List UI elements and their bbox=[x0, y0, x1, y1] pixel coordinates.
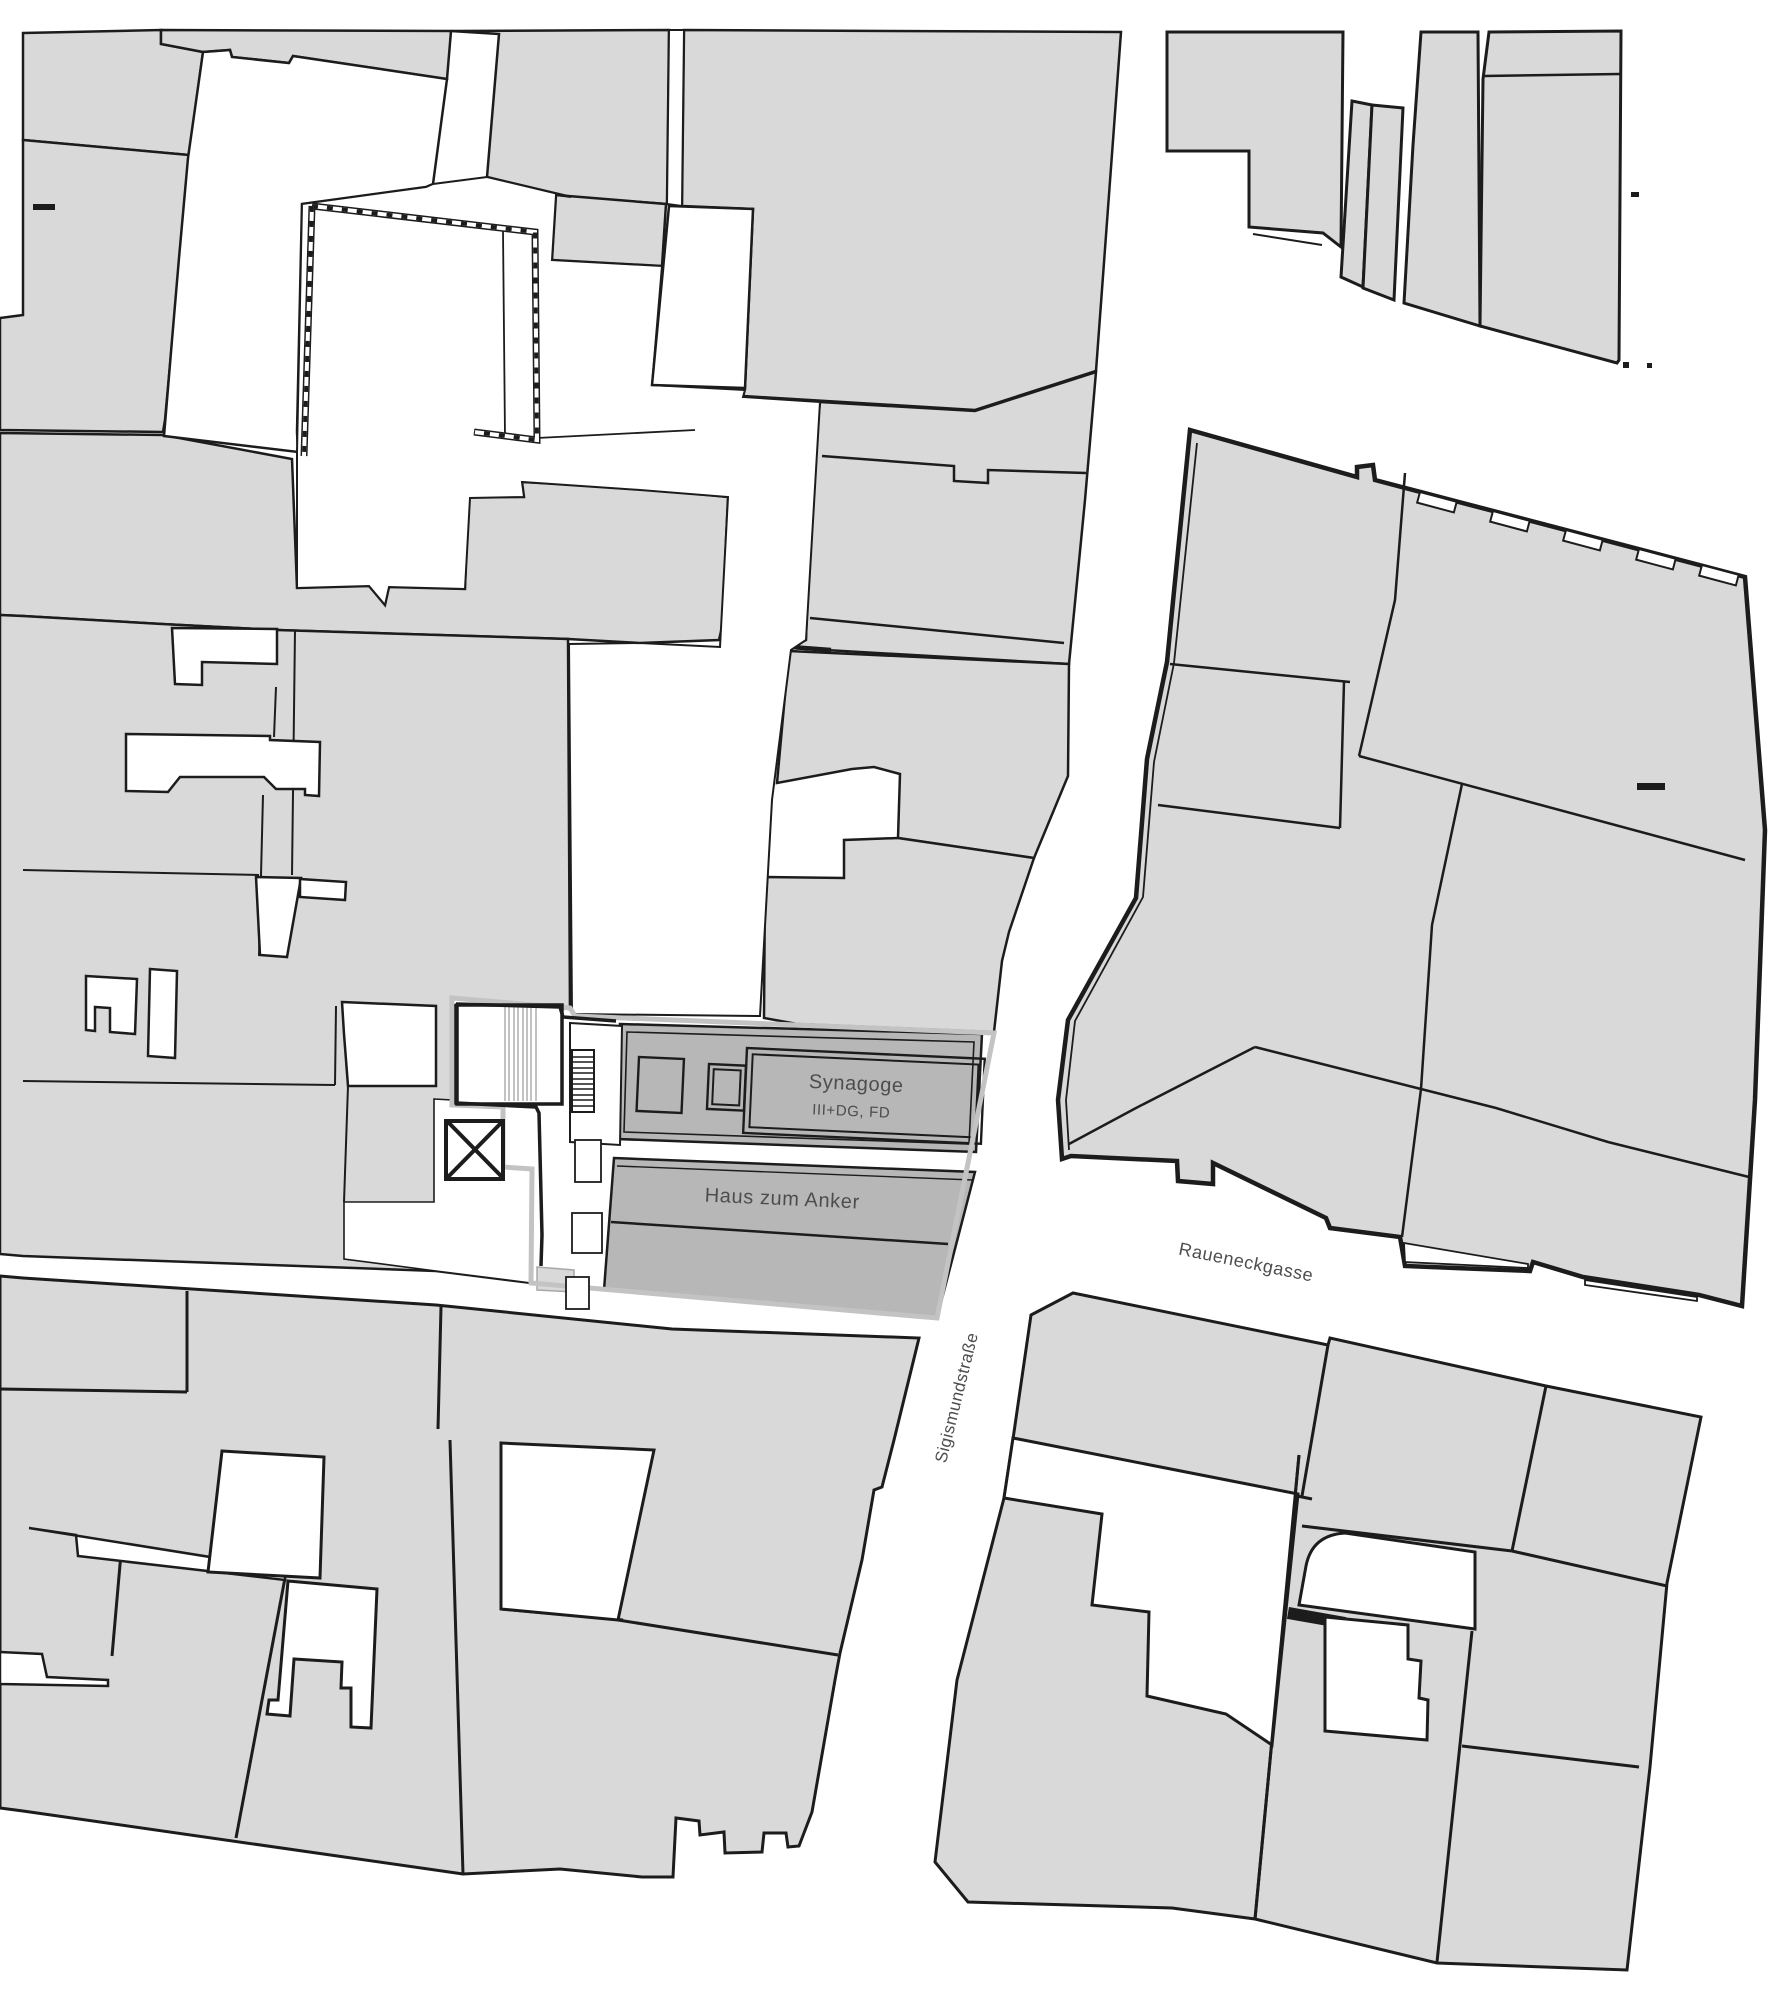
svg-text:III+DG, FD: III+DG, FD bbox=[812, 1101, 891, 1122]
svg-text:Sigismundstraße: Sigismundstraße bbox=[931, 1331, 982, 1465]
svg-text:Raueneckgasse: Raueneckgasse bbox=[1177, 1239, 1315, 1286]
svg-text:Synagoge: Synagoge bbox=[808, 1071, 904, 1097]
